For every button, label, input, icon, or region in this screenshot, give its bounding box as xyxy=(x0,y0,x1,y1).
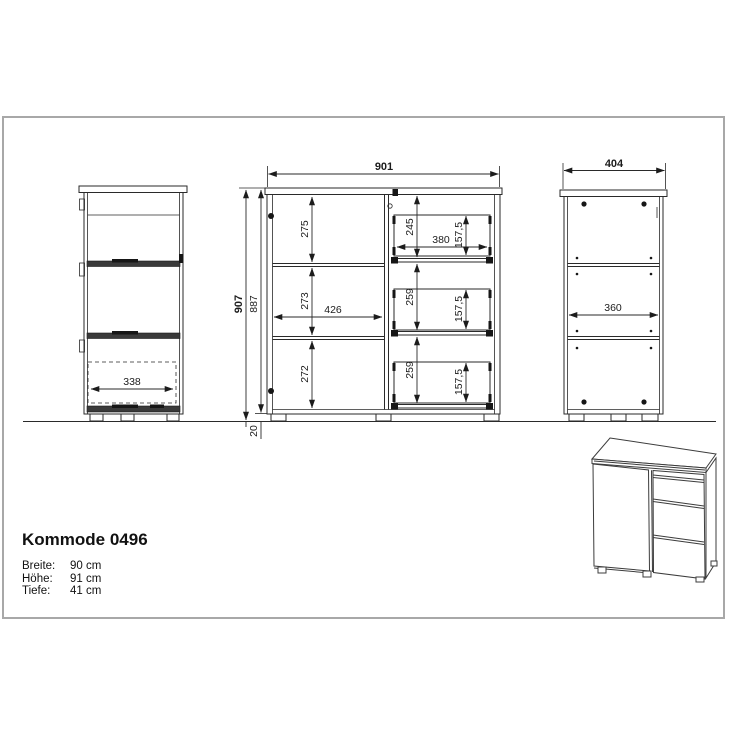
front-view: 901 275 273 272 426 xyxy=(265,161,502,421)
fitting-mark xyxy=(393,189,399,196)
foot xyxy=(90,414,103,421)
dim-total-height: 907 xyxy=(233,295,245,313)
iso-drawer-column xyxy=(653,471,705,580)
dim-side-left-inner-width: 338 xyxy=(123,376,141,388)
spec-value: 90 cm xyxy=(70,560,101,573)
dim-drawer-bot-front: 157,5 xyxy=(453,369,465,395)
foot xyxy=(271,414,286,421)
foot xyxy=(569,414,584,421)
product-info: Kommode 0496 Breite: 90 cm Höhe: 91 cm T… xyxy=(22,530,148,598)
height-dimensions: 907 887 20 xyxy=(233,188,268,439)
dim-drawer-bot-pitch: 259 xyxy=(404,361,416,379)
foot xyxy=(376,414,391,421)
cam-dot xyxy=(581,399,586,404)
dim-body-height: 887 xyxy=(248,295,260,313)
cam-dot xyxy=(641,201,646,206)
iso-door xyxy=(593,464,650,571)
spec-value: 41 cm xyxy=(70,585,101,598)
side-view-right: 404 360 xyxy=(560,158,667,421)
dim-side-inner-depth: 360 xyxy=(604,302,622,314)
drawing-sheet: 338 907 887 20 901 xyxy=(0,0,736,736)
dim-comp-mid: 273 xyxy=(299,292,311,310)
spec-label: Breite: xyxy=(22,560,70,573)
foot xyxy=(696,577,704,582)
dim-plinth-height: 20 xyxy=(248,425,260,437)
spec-label: Tiefe: xyxy=(22,585,70,598)
spec-row-tiefe: Tiefe: 41 cm xyxy=(22,585,148,598)
dim-drawer-mid-pitch: 259 xyxy=(404,288,416,306)
hinge-mark xyxy=(268,388,274,394)
spec-row-breite: Breite: 90 cm xyxy=(22,560,148,573)
foot xyxy=(167,414,179,421)
foot xyxy=(484,414,499,421)
spec-label: Höhe: xyxy=(22,573,70,586)
spec-value: 91 cm xyxy=(70,573,101,586)
dim-drawer-top-front: 157,5 xyxy=(453,222,465,248)
dim-comp-bottom: 272 xyxy=(299,365,311,383)
foot xyxy=(598,567,606,573)
foot xyxy=(642,414,658,421)
foot xyxy=(711,561,717,566)
dim-door-inner-width: 426 xyxy=(324,304,342,316)
dim-comp-top: 275 xyxy=(299,220,311,238)
product-title: Kommode 0496 xyxy=(22,530,148,550)
dim-side-depth: 404 xyxy=(605,158,624,170)
dim-drawer-top-width: 380 xyxy=(432,234,450,246)
foot xyxy=(121,414,134,421)
dim-drawer-top-pitch: 245 xyxy=(404,218,416,236)
hinge-mark xyxy=(268,213,274,219)
dim-front-width: 901 xyxy=(375,161,393,173)
cam-dot xyxy=(581,201,586,206)
dim-drawer-mid-front: 157,5 xyxy=(453,296,465,322)
iso-sketch xyxy=(592,438,717,582)
technical-drawing-svg: 338 907 887 20 901 xyxy=(0,0,736,736)
spec-row-hoehe: Höhe: 91 cm xyxy=(22,573,148,586)
cam-dot xyxy=(641,399,646,404)
foot xyxy=(643,571,651,577)
foot xyxy=(611,414,626,421)
side-view-left: 338 xyxy=(79,186,187,421)
